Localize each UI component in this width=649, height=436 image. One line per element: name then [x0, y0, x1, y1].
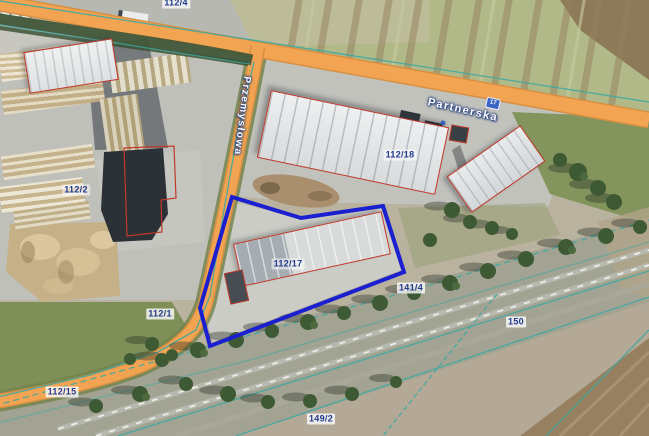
parcel-label-150: 150: [506, 317, 526, 328]
parcel-label-112-18: 112/18: [384, 150, 417, 161]
map-canvas[interactable]: 112/4 112/2 112/18 112/17 112/1 112/15 1…: [0, 0, 649, 436]
highlighted-parcel-112-17[interactable]: [200, 197, 404, 346]
parcel-label-112-4: 112/4: [162, 0, 190, 9]
parcel-label-112-17: 112/17: [272, 259, 305, 270]
highlight-layer: [0, 0, 649, 436]
parcel-label-112-2: 112/2: [62, 185, 90, 196]
parcel-label-112-15: 112/15: [46, 387, 79, 398]
parcel-label-141-4: 141/4: [397, 283, 425, 294]
parcel-label-149-2: 149/2: [307, 414, 335, 425]
